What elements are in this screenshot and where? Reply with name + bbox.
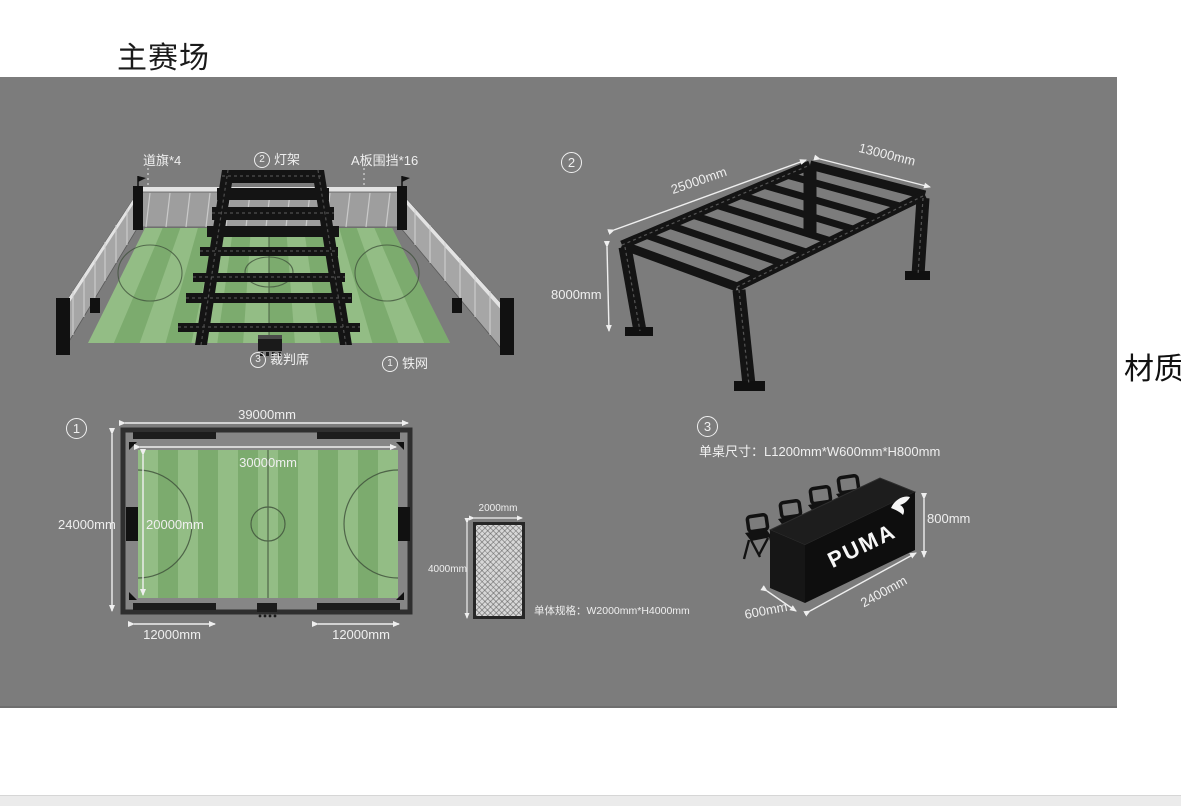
material-label: 材质 <box>1124 344 1181 388</box>
label-fence: 1 铁网 <box>382 356 428 372</box>
stadium-3d-svg <box>50 140 520 385</box>
fence-panel-arrows-svg <box>460 500 540 625</box>
truss-dim-height: 8000mm <box>551 287 602 303</box>
label-referee-text: 裁判席 <box>270 352 309 368</box>
bottom-strip <box>0 795 1181 806</box>
label-referee: 3 裁判席 <box>250 352 309 368</box>
table-diagram-marker: 3 <box>697 416 718 437</box>
field-dim-outer-height: 24000mm <box>58 517 116 533</box>
field-dim-inner-height: 20000mm <box>146 517 204 533</box>
circled-number-3: 3 <box>250 352 266 368</box>
goal-right <box>398 507 410 541</box>
table-spec: 单桌尺寸：L1200mm*W600mm*H800mm <box>699 444 940 460</box>
label-light-rig-text: 灯架 <box>274 152 300 168</box>
fence-panel-spec: 单体规格：W2000mm*H4000mm <box>534 605 690 618</box>
field-dim-gate-left: 12000mm <box>143 627 201 643</box>
goal-left <box>126 507 138 541</box>
truss-diagram-marker: 2 <box>561 152 582 173</box>
circled-number-1: 1 <box>382 356 398 372</box>
page-title: 主赛场 <box>117 33 210 77</box>
truss-feet <box>625 271 930 391</box>
field-dim-outer-width: 39000mm <box>238 407 296 423</box>
label-fence-text: 铁网 <box>402 356 428 372</box>
slide: { "page": { "title": "主赛场", "material_la… <box>0 0 1181 805</box>
truss-structure-svg <box>595 145 1005 400</box>
fence-panel-dim-height: 4000mm <box>428 564 467 577</box>
label-flags: 道旗*4 <box>143 153 181 169</box>
table-dim-height: 800mm <box>927 511 970 527</box>
referee-desk-plan <box>257 603 277 617</box>
field-dim-inner-width: 30000mm <box>239 455 297 471</box>
fence-panel-dim-width: 2000mm <box>479 503 518 516</box>
field-dim-gate-right: 12000mm <box>332 627 390 643</box>
truss-frame <box>622 165 925 385</box>
field-plan-marker: 1 <box>66 418 87 439</box>
circled-number-2: 2 <box>254 152 270 168</box>
label-light-rig: 2 灯架 <box>254 152 300 168</box>
label-aboard: A板围挡*16 <box>351 153 418 169</box>
